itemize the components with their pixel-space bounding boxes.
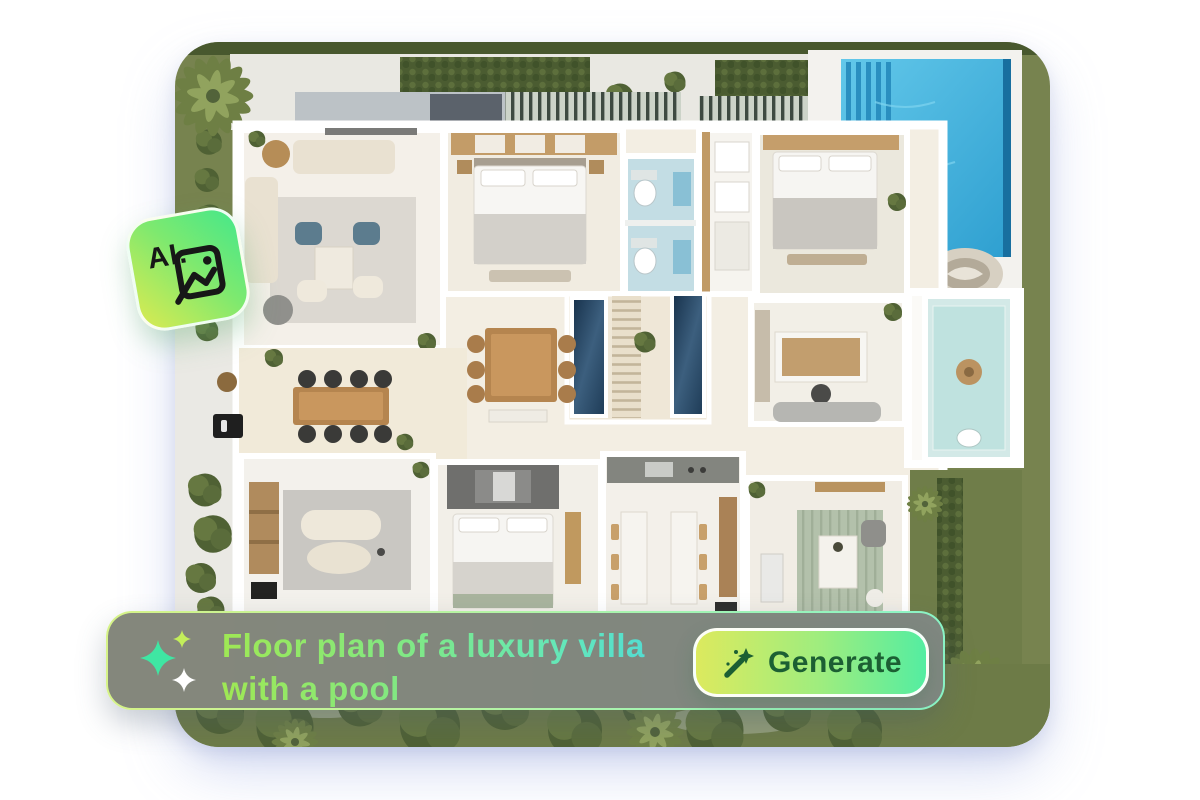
bedroom-3 bbox=[435, 462, 601, 630]
sparkles-icon bbox=[138, 628, 206, 698]
family-room bbox=[747, 478, 905, 630]
bathroom-2 bbox=[925, 296, 1013, 460]
lounge-room bbox=[241, 456, 433, 630]
dining-area bbox=[213, 348, 467, 460]
closet-room bbox=[699, 130, 755, 294]
prompt-line-2: with a pool bbox=[222, 667, 400, 710]
ai-image-badge: AI. bbox=[122, 203, 254, 335]
living-room bbox=[241, 128, 443, 351]
page: AI. Floor plan of a luxury villa with a … bbox=[0, 0, 1200, 800]
prompt-input-bar[interactable]: Floor plan of a luxury villa with a pool… bbox=[108, 613, 943, 708]
office-room bbox=[751, 300, 905, 424]
generate-button[interactable]: Generate bbox=[693, 628, 929, 697]
prompt-line-1: Floor plan of a luxury villa bbox=[222, 624, 645, 667]
villa-interior bbox=[213, 128, 1013, 658]
bedroom-2 bbox=[757, 132, 907, 296]
ai-badge-label: AI. bbox=[145, 237, 190, 276]
prompt-bar-border: Floor plan of a luxury villa with a pool… bbox=[106, 611, 945, 710]
prompt-text: Floor plan of a luxury villa with a pool bbox=[222, 624, 645, 710]
staircase bbox=[567, 294, 709, 422]
generate-button-label: Generate bbox=[768, 646, 902, 680]
bathroom-1 bbox=[625, 156, 697, 294]
bedroom-1 bbox=[445, 130, 623, 294]
magic-wand-icon bbox=[720, 645, 756, 681]
kitchen bbox=[603, 454, 743, 630]
